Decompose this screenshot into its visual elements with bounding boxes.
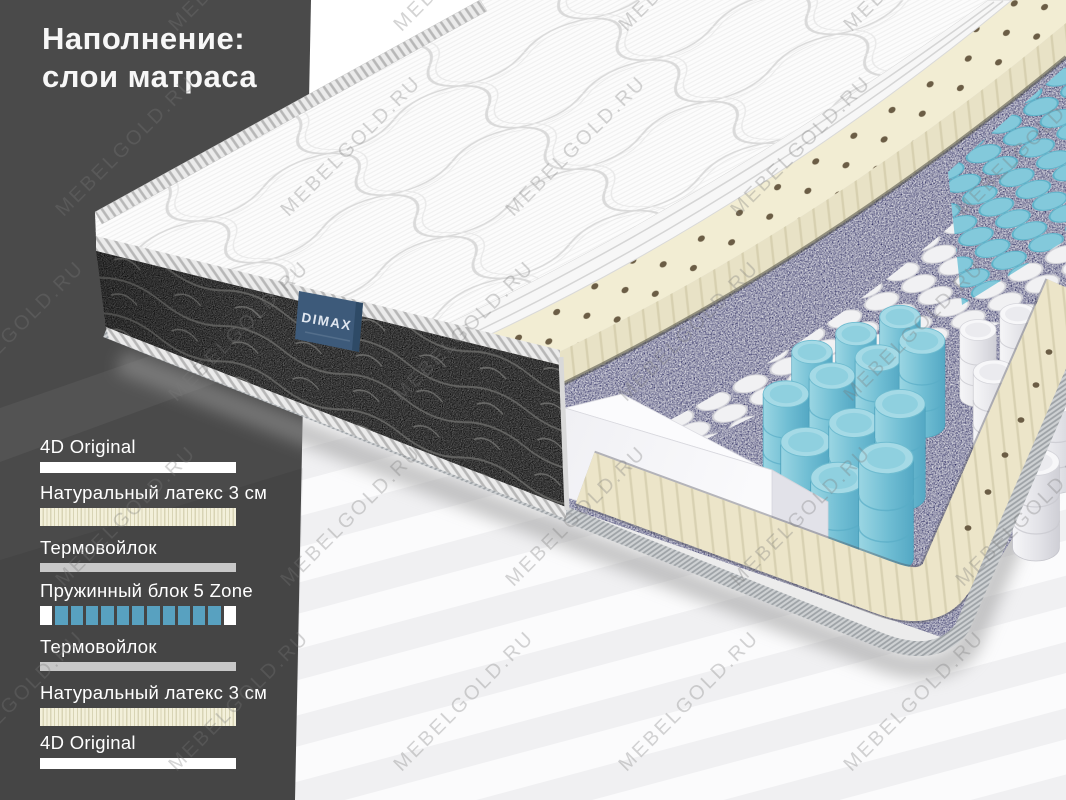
spring-zone-square-blue: [132, 606, 144, 625]
spring-zone-square-blue: [178, 606, 190, 625]
spring-zone-square-blue: [208, 606, 220, 625]
title-line-1: Наполнение:: [42, 20, 257, 58]
spring-zone-square-blue: [193, 606, 205, 625]
spring-zone-square-blue: [117, 606, 129, 625]
layer-item-latex-top: Натуральный латекс 3 см: [40, 482, 240, 526]
page-title: Наполнение: слои матраса: [42, 20, 257, 96]
spring-zone-square-blue: [101, 606, 113, 625]
layer-label: Термовойлок: [40, 636, 240, 658]
spring-zone-square-blue: [86, 606, 98, 625]
layer-swatch-felt: [40, 563, 236, 572]
spring-zone-square-white: [224, 606, 236, 625]
layer-label: Термовойлок: [40, 537, 240, 559]
spring-zone-square-white: [40, 606, 52, 625]
spring-zone-square-blue: [163, 606, 175, 625]
spring-zone-square-blue: [71, 606, 83, 625]
text-overlay: Наполнение: слои матраса 4D Original Нат…: [0, 0, 1066, 800]
layer-label: Натуральный латекс 3 см: [40, 482, 240, 504]
product-infographic: DIMAX Наполнение: слои матраса 4D Origin…: [0, 0, 1066, 800]
layer-swatch-4d-original: [40, 462, 236, 473]
layer-item-spring-block: Пружинный блок 5 Zone: [40, 580, 240, 625]
layer-swatch-spring-block: [40, 606, 236, 625]
layer-swatch-latex: [40, 708, 236, 726]
spring-zone-square-blue: [55, 606, 67, 625]
layer-swatch-4d-original: [40, 758, 236, 769]
layer-item-felt-top: Термовойлок: [40, 537, 240, 572]
layer-label: 4D Original: [40, 732, 240, 754]
layer-item-4d-original-bottom: 4D Original: [40, 732, 240, 769]
spring-zone-square-blue: [147, 606, 159, 625]
layer-swatch-latex: [40, 508, 236, 526]
layer-item-latex-bottom: Натуральный латекс 3 см: [40, 682, 240, 726]
layer-label: 4D Original: [40, 436, 240, 458]
layer-label: Пружинный блок 5 Zone: [40, 580, 240, 602]
layer-label: Натуральный латекс 3 см: [40, 682, 240, 704]
layer-item-felt-bottom: Термовойлок: [40, 636, 240, 671]
title-line-2: слои матраса: [42, 58, 257, 96]
layer-swatch-felt: [40, 662, 236, 671]
layer-item-4d-original-top: 4D Original: [40, 436, 240, 473]
